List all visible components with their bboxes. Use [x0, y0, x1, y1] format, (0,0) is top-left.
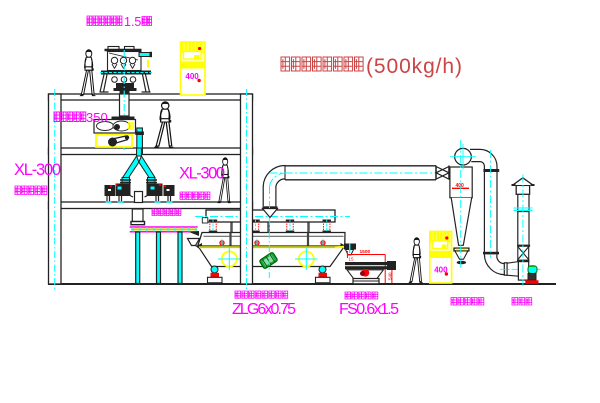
svg-text:XL-300: XL-300 — [179, 165, 225, 183]
svg-text:(500kg/h): (500kg/h) — [366, 55, 462, 78]
svg-text:ZLG6x0.75: ZLG6x0.75 — [232, 301, 296, 318]
svg-text:540: 540 — [388, 272, 393, 280]
svg-text:FS0.6x1.5: FS0.6x1.5 — [339, 301, 399, 318]
svg-text:350: 350 — [86, 110, 108, 125]
svg-text:15: 15 — [349, 257, 355, 262]
svg-text:400: 400 — [185, 72, 199, 81]
svg-text:400: 400 — [456, 183, 465, 189]
svg-text:1.5: 1.5 — [124, 15, 141, 29]
svg-text:1500: 1500 — [360, 249, 371, 255]
svg-text:XL-300: XL-300 — [14, 161, 61, 179]
